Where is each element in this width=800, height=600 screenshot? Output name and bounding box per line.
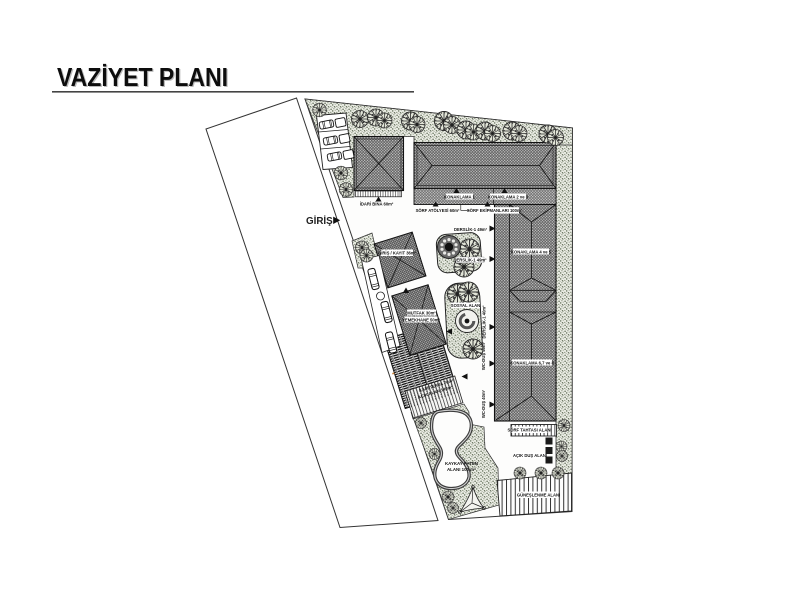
- svg-text:YEMEKHANE 50m²: YEMEKHANE 50m²: [402, 317, 440, 322]
- svg-text:DERSLİK-1 49m²: DERSLİK-1 49m²: [453, 258, 487, 263]
- svg-text:VAZİYET PLANI: VAZİYET PLANI: [57, 62, 228, 92]
- svg-text:KONAKLAMA 1: KONAKLAMA 1: [444, 194, 475, 199]
- svg-text:SÖRF ATÖLYESİ 60m²: SÖRF ATÖLYESİ 60m²: [416, 208, 460, 213]
- svg-text:MUTFAK 30m²: MUTFAK 30m²: [407, 310, 436, 315]
- svg-text:SOSYAL ALAN: SOSYAL ALAN: [451, 303, 480, 308]
- svg-text:DERSLİK-1 49m²: DERSLİK-1 49m²: [454, 227, 488, 232]
- svg-text:SÖRF EKİPMANLARI 100m²: SÖRF EKİPMANLARI 100m²: [467, 208, 523, 213]
- svg-text:WC-DUŞ 40m²: WC-DUŞ 40m²: [481, 389, 486, 418]
- svg-text:GİRİŞ: GİRİŞ: [306, 216, 333, 227]
- svg-text:KONAKLAMA 2 ve 3: KONAKLAMA 2 ve 3: [488, 194, 529, 199]
- svg-text:DERSLİK-1 40m²: DERSLİK-1 40m²: [482, 305, 487, 339]
- svg-text:KONAKLAMA 6,7 ve 8: KONAKLAMA 6,7 ve 8: [510, 360, 554, 365]
- svg-text:İDARİ BİNA 60m²: İDARİ BİNA 60m²: [360, 202, 394, 207]
- svg-text:KAYKAY PATEN: KAYKAY PATEN: [445, 461, 478, 466]
- svg-text:AÇIK DUŞ ALANI: AÇIK DUŞ ALANI: [513, 453, 547, 458]
- svg-text:KONAKLAMA 4 ve 5: KONAKLAMA 4 ve 5: [511, 249, 552, 254]
- svg-text:GÜNEŞLENME ALANI: GÜNEŞLENME ALANI: [517, 493, 560, 498]
- svg-text:GİRİŞ / KAYIT 36m²: GİRİŞ / KAYIT 36m²: [378, 251, 417, 256]
- svg-text:ALANI 100 m²: ALANI 100 m²: [447, 467, 476, 472]
- svg-text:SÖRF TAHTASI ALANI: SÖRF TAHTASI ALANI: [507, 428, 551, 433]
